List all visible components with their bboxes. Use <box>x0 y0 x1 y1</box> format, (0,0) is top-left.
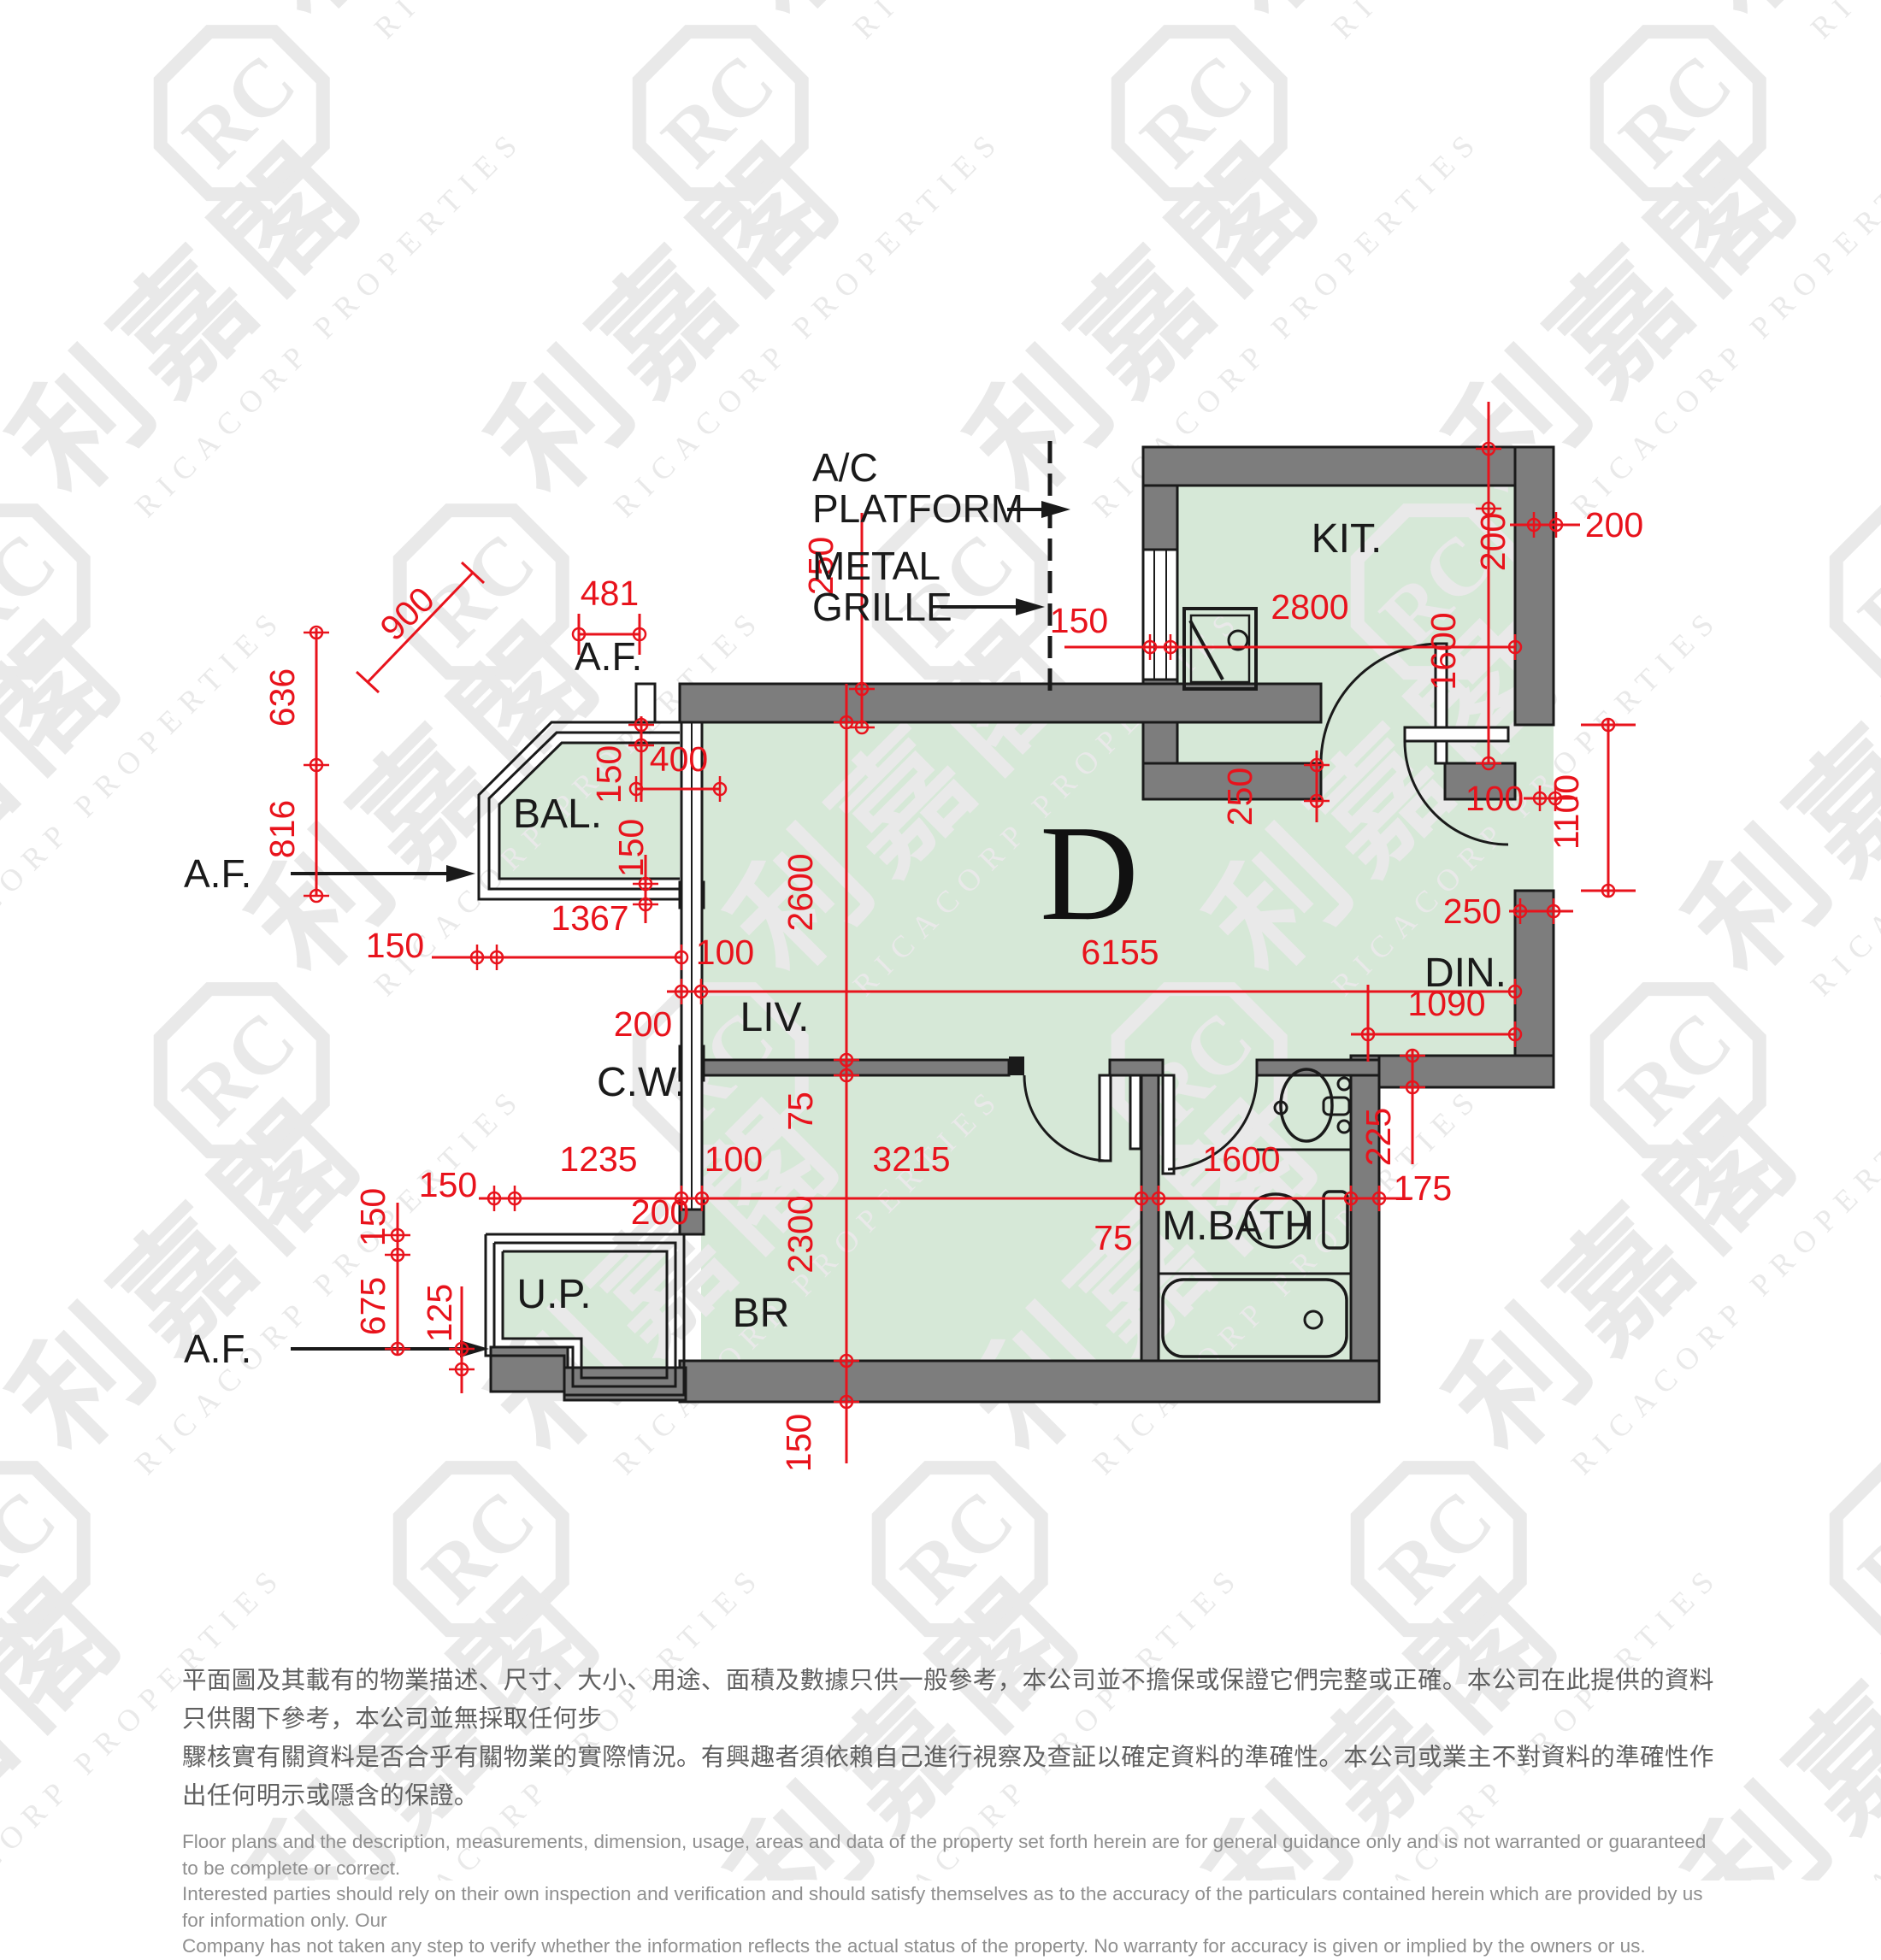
floor-plan: RC利嘉閣RICACORP PROPERTIESRC利嘉閣RICACORP PR… <box>0 0 1881 1881</box>
dimension-label: 400 <box>650 739 708 779</box>
wall-liv-br <box>701 1060 1009 1075</box>
partition-stub <box>1130 1075 1141 1149</box>
room-label-utility-platform: U.P. <box>516 1272 591 1317</box>
disclaimer-zh-line2: 驟核實有關資料是否合乎有關物業的實際情況。有興趣者須依賴自己進行視察及查証以確定… <box>182 1739 1721 1816</box>
disclaimer-en-line3: Company has not taken any step to verify… <box>182 1934 1721 1960</box>
dimension-label: 200 <box>1585 505 1643 544</box>
wall-mbath-right <box>1351 1056 1379 1393</box>
dimension-label: 150 <box>353 1188 392 1246</box>
wall-kitchen-left-upper <box>1143 486 1177 550</box>
annotation-ac-platform: PLATFORM <box>812 486 1023 531</box>
dimension-label: 1235 <box>559 1139 637 1179</box>
dimension-label: 125 <box>420 1284 459 1342</box>
disclaimer-en-line2: Interested parties should rely on their … <box>182 1881 1721 1934</box>
room-label-master-bath: M.BATH <box>1162 1204 1314 1249</box>
wall-between-doors <box>1110 1060 1163 1075</box>
dimension-label: 481 <box>581 574 639 613</box>
dimension-label: 225 <box>1359 1108 1398 1166</box>
annotation-af-middle: A.F. <box>184 851 251 896</box>
dimension-label: 200 <box>614 1004 672 1044</box>
room-label-balcony: BAL. <box>513 792 602 837</box>
disclaimer-en-line1: Floor plans and the description, measure… <box>182 1829 1721 1881</box>
annotation-af-top: A.F. <box>575 634 642 679</box>
dimension-label: 1600 <box>1202 1139 1280 1179</box>
dimension-label: 200 <box>631 1192 689 1232</box>
dimension-label: 3215 <box>872 1139 950 1179</box>
dimension-label: 75 <box>781 1092 820 1131</box>
room-label-curtain-wall: C.W. <box>597 1060 686 1105</box>
annotation-af-bottom: A.F. <box>184 1327 251 1371</box>
unit-label: D <box>1040 797 1139 949</box>
watermark-latin-text: RICACORP PROPERTIES <box>1804 0 1881 45</box>
annotation-metal-grille: GRILLE <box>812 585 952 629</box>
wall-din-bottom <box>1351 1056 1554 1087</box>
door-jamb <box>1009 1057 1024 1075</box>
dimension-label: 250 <box>1443 892 1501 931</box>
dimension-label: 816 <box>262 800 302 858</box>
mbath-door-leaf <box>1163 1075 1174 1174</box>
wall-mbath-left <box>1141 1075 1159 1361</box>
annotation-metal-grille: METAL <box>812 544 940 588</box>
dimension-label: 150 <box>779 1414 818 1472</box>
dimension-label: 1600 <box>1424 612 1463 690</box>
wall-kitchen-right <box>1515 447 1554 725</box>
dimension-label: 675 <box>353 1277 392 1335</box>
dimension-label: 2800 <box>1271 587 1348 627</box>
room-label-dining: DIN. <box>1424 951 1507 996</box>
wall-up-step <box>491 1347 568 1392</box>
dimension-label: 150 <box>366 926 424 965</box>
watermark-cjk-text: 利嘉閣 <box>0 0 156 44</box>
dimension-label: 200 <box>1473 513 1512 571</box>
room-label-living: LIV. <box>740 995 810 1040</box>
dimension-label: 2300 <box>781 1195 820 1273</box>
room-label-bedroom: BR <box>733 1291 790 1336</box>
dimension-label: 150 <box>419 1165 477 1204</box>
annotation-ac-platform: A/C <box>812 445 878 490</box>
dimension-label: 175 <box>1394 1168 1452 1208</box>
wall-bottom <box>680 1361 1379 1402</box>
entrance-door-leaf <box>1405 727 1508 741</box>
disclaimer-block: 平面圖及其載有的物業描述、尺寸、大小、用途、面積及數據只供一般參考，本公司並不擔… <box>182 1662 1721 1960</box>
bedroom-door-leaf <box>1100 1075 1111 1161</box>
disclaimer-zh-line1: 平面圖及其載有的物業描述、尺寸、大小、用途、面積及數據只供一般參考，本公司並不擔… <box>182 1662 1721 1739</box>
dimension-label: 636 <box>262 668 302 727</box>
dimension-label: 150 <box>1050 601 1108 640</box>
dimension-label: 250 <box>1220 768 1259 826</box>
kitchen-window <box>1143 550 1177 680</box>
dimension-label: 100 <box>696 933 754 972</box>
dimension-label: 100 <box>1465 779 1524 818</box>
dimension-label: 75 <box>1094 1218 1133 1257</box>
dimension-label: 100 <box>705 1139 763 1179</box>
dimension-label: 1367 <box>551 898 628 938</box>
room-label-kitchen: KIT. <box>1312 516 1383 562</box>
dimension-label: 1100 <box>1547 774 1586 850</box>
architectural-fin <box>636 684 655 722</box>
dimension-label: 150 <box>611 819 651 877</box>
dimension-label: 2600 <box>781 853 820 931</box>
